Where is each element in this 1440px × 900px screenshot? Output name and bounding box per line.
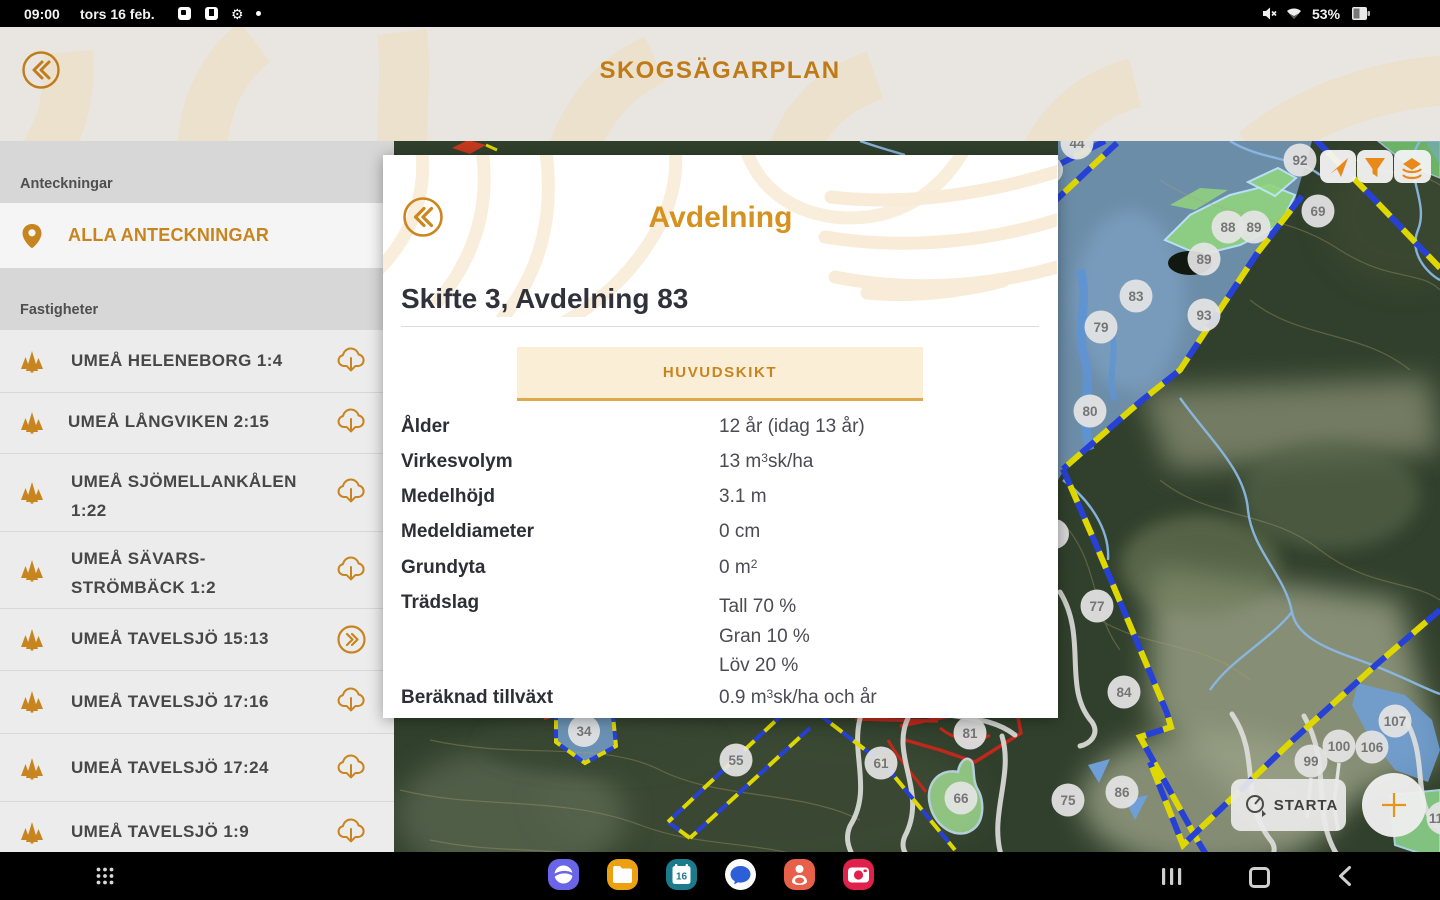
svg-text:STARTA: STARTA [1274, 797, 1339, 814]
svg-text:16: 16 [676, 872, 688, 883]
svg-text:34: 34 [576, 724, 592, 739]
svg-text:80: 80 [1082, 404, 1097, 419]
svg-text:106: 106 [1361, 740, 1384, 755]
svg-text:11: 11 [1429, 811, 1440, 826]
svg-text:107: 107 [1384, 714, 1407, 729]
svg-text:84: 84 [1116, 685, 1132, 700]
svg-text:77: 77 [1089, 599, 1104, 614]
svg-text:100: 100 [1328, 739, 1351, 754]
svg-text:83: 83 [1128, 289, 1144, 304]
svg-text:89: 89 [1246, 220, 1261, 235]
svg-text:61: 61 [873, 756, 889, 771]
svg-text:99: 99 [1303, 754, 1318, 769]
svg-text:69: 69 [1310, 204, 1325, 219]
svg-text:93: 93 [1196, 308, 1212, 323]
svg-text:44: 44 [1069, 141, 1085, 151]
svg-text:79: 79 [1093, 320, 1108, 335]
svg-text:66: 66 [953, 791, 969, 806]
svg-text:86: 86 [1114, 785, 1130, 800]
svg-text:75: 75 [1060, 793, 1076, 808]
svg-text:88: 88 [1220, 220, 1236, 235]
svg-text:89: 89 [1196, 252, 1211, 267]
svg-text:92: 92 [1292, 153, 1307, 168]
svg-text:55: 55 [728, 753, 744, 768]
svg-text:81: 81 [962, 726, 978, 741]
